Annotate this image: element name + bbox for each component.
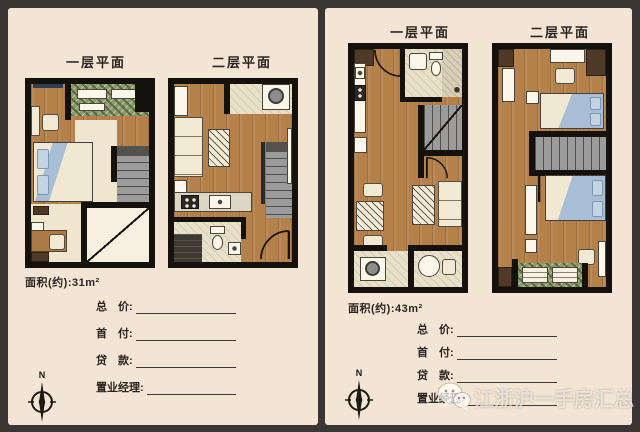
pillow — [37, 149, 49, 169]
double-height-void — [81, 202, 149, 262]
double-bed — [545, 175, 606, 221]
field-total-price: 总 价: — [417, 323, 557, 337]
staircase — [117, 146, 149, 206]
compass-north-label: N — [356, 368, 363, 378]
wall — [135, 84, 149, 112]
toilet-tank — [429, 52, 443, 60]
right-flyer-panel: 一层平面 二层平面 — [325, 8, 632, 425]
chair — [442, 259, 456, 275]
stair-landing — [117, 146, 149, 156]
storage — [31, 252, 49, 262]
field-label: 总 价: — [96, 298, 133, 314]
blank-line — [457, 348, 557, 360]
void-diagonal — [87, 208, 149, 262]
toilet — [210, 226, 225, 254]
planter-box — [522, 267, 548, 283]
bed — [540, 93, 604, 129]
planter-box — [77, 89, 107, 99]
stove — [181, 195, 199, 209]
field-total-price: 总 价: — [96, 300, 236, 314]
blank-line — [147, 383, 236, 395]
cabinet — [354, 137, 367, 153]
planter-box — [552, 267, 578, 283]
right-floor1-plan — [348, 43, 468, 293]
washing-machine — [262, 84, 290, 110]
nightstand — [526, 91, 539, 104]
chair — [42, 114, 59, 131]
wall — [224, 84, 230, 114]
wall — [418, 150, 462, 156]
blank-line — [457, 325, 557, 337]
kitchen-sink — [209, 195, 231, 209]
field-loan: 贷 款: — [96, 354, 236, 368]
left-flyer-panel: 一层平面 二层平面 — [8, 8, 318, 425]
field-down-payment: 首 付: — [417, 346, 557, 360]
bathroom-sink — [409, 53, 427, 70]
stove — [354, 85, 366, 101]
field-label: 置业经理: — [96, 379, 144, 395]
field-label: 总 价: — [417, 321, 454, 337]
nightstand — [33, 206, 49, 215]
field-label: 首 付: — [96, 325, 133, 341]
desk — [598, 241, 606, 277]
washer-drum — [365, 261, 380, 276]
right-area-label: 面积(约):43m² — [348, 300, 423, 316]
window — [33, 84, 63, 88]
field-property-manager: 置业经理: — [96, 381, 236, 395]
staircase — [424, 105, 462, 150]
wall — [582, 263, 588, 287]
left-floor1-plan — [25, 78, 155, 268]
staircase — [535, 137, 606, 170]
coffee-table — [208, 129, 230, 167]
shower — [174, 234, 202, 262]
stair-diagonal — [424, 105, 462, 150]
entry-door-arc — [374, 49, 402, 77]
bathroom — [405, 49, 462, 97]
right-floor2-plan — [492, 43, 612, 293]
chair — [555, 68, 575, 84]
wardrobe — [498, 49, 514, 67]
compass-icon: N — [339, 366, 379, 424]
field-label: 贷 款: — [96, 352, 133, 368]
sofa — [174, 117, 203, 177]
wardrobe — [174, 86, 188, 116]
desk — [550, 49, 585, 63]
toilet-bowl — [431, 61, 442, 76]
door-arc — [260, 230, 290, 260]
kitchen-sink — [355, 67, 365, 79]
washer-drum — [268, 88, 284, 104]
toilet-bowl — [212, 235, 224, 250]
pillow — [590, 97, 601, 110]
field-label: 贷 款: — [417, 367, 454, 383]
toilet — [429, 52, 443, 76]
shower — [442, 49, 462, 97]
pillow — [592, 201, 603, 217]
left-price-fields: 总 价: 首 付: 贷 款: 置业经理: — [96, 300, 236, 408]
wall — [65, 84, 71, 120]
storage — [498, 267, 512, 287]
toilet-tank — [210, 226, 225, 234]
wardrobe — [525, 185, 537, 235]
wall — [400, 97, 442, 102]
chair — [363, 183, 383, 197]
window — [287, 128, 292, 184]
door-arc — [426, 157, 448, 179]
watermark: 江浙沪一手房汇总 — [437, 382, 634, 412]
dining-table — [356, 201, 384, 231]
left-floor2-plan — [168, 78, 298, 268]
compass-icon: N — [22, 368, 62, 426]
flyer-image: 一层平面 二层平面 — [0, 0, 640, 432]
field-loan: 贷 款: — [417, 369, 557, 383]
chair — [49, 234, 65, 250]
kitchen-counter — [174, 192, 252, 212]
coffee-table — [412, 185, 435, 225]
pillow — [592, 180, 603, 196]
double-bed — [33, 142, 93, 202]
watermark-text: 江浙沪一手房汇总 — [474, 383, 634, 412]
wall — [418, 156, 424, 178]
closet — [502, 68, 515, 102]
left-floor1-title: 一层平面 — [36, 52, 156, 71]
wardrobe — [586, 49, 606, 76]
blank-line — [136, 356, 236, 368]
washing-machine — [360, 257, 386, 281]
right-floor1-title: 一层平面 — [360, 22, 480, 41]
blank-line — [136, 302, 236, 314]
compass-north-label: N — [39, 370, 46, 380]
wall — [418, 105, 424, 150]
balcony — [518, 263, 582, 287]
right-floor2-title: 二层平面 — [500, 22, 620, 41]
sofa — [438, 181, 462, 227]
round-table — [418, 255, 440, 277]
left-area-label: 面积(约):31m² — [25, 274, 100, 290]
cabinet — [525, 239, 537, 253]
left-floor2-title: 二层平面 — [182, 52, 302, 71]
bathroom-sink — [228, 242, 241, 255]
pillow — [590, 113, 601, 126]
field-down-payment: 首 付: — [96, 327, 236, 341]
wechat-icon — [437, 382, 471, 412]
stair-railing — [261, 142, 265, 204]
pillow — [37, 175, 49, 195]
blank-line — [136, 329, 236, 341]
planter-box — [79, 103, 105, 111]
wall — [241, 217, 246, 239]
field-label: 首 付: — [417, 344, 454, 360]
side-table — [31, 106, 40, 136]
